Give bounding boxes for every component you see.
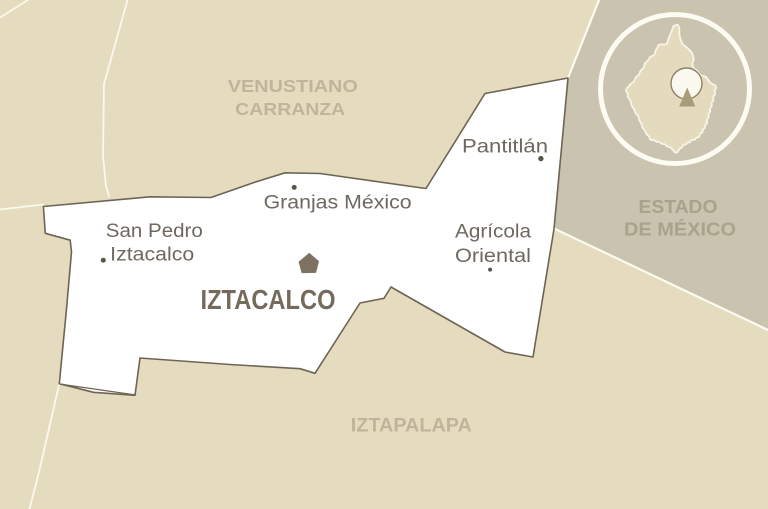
svg-text:Oriental: Oriental — [455, 246, 531, 267]
svg-text:IZTACALCO: IZTACALCO — [201, 284, 336, 315]
svg-text:IZTAPALAPA: IZTAPALAPA — [351, 416, 472, 437]
svg-text:DE MÉXICO: DE MÉXICO — [624, 218, 736, 239]
svg-text:VENUSTIANO: VENUSTIANO — [228, 76, 358, 96]
svg-text:Iztacalco: Iztacalco — [110, 244, 194, 265]
svg-text:ESTADO: ESTADO — [639, 197, 718, 217]
svg-text:San Pedro: San Pedro — [106, 221, 203, 242]
svg-text:Agrícola: Agrícola — [455, 221, 531, 242]
svg-text:Pantitlán: Pantitlán — [462, 136, 548, 157]
svg-text:CARRANZA: CARRANZA — [235, 99, 345, 119]
svg-text:Granjas México: Granjas México — [264, 192, 412, 213]
